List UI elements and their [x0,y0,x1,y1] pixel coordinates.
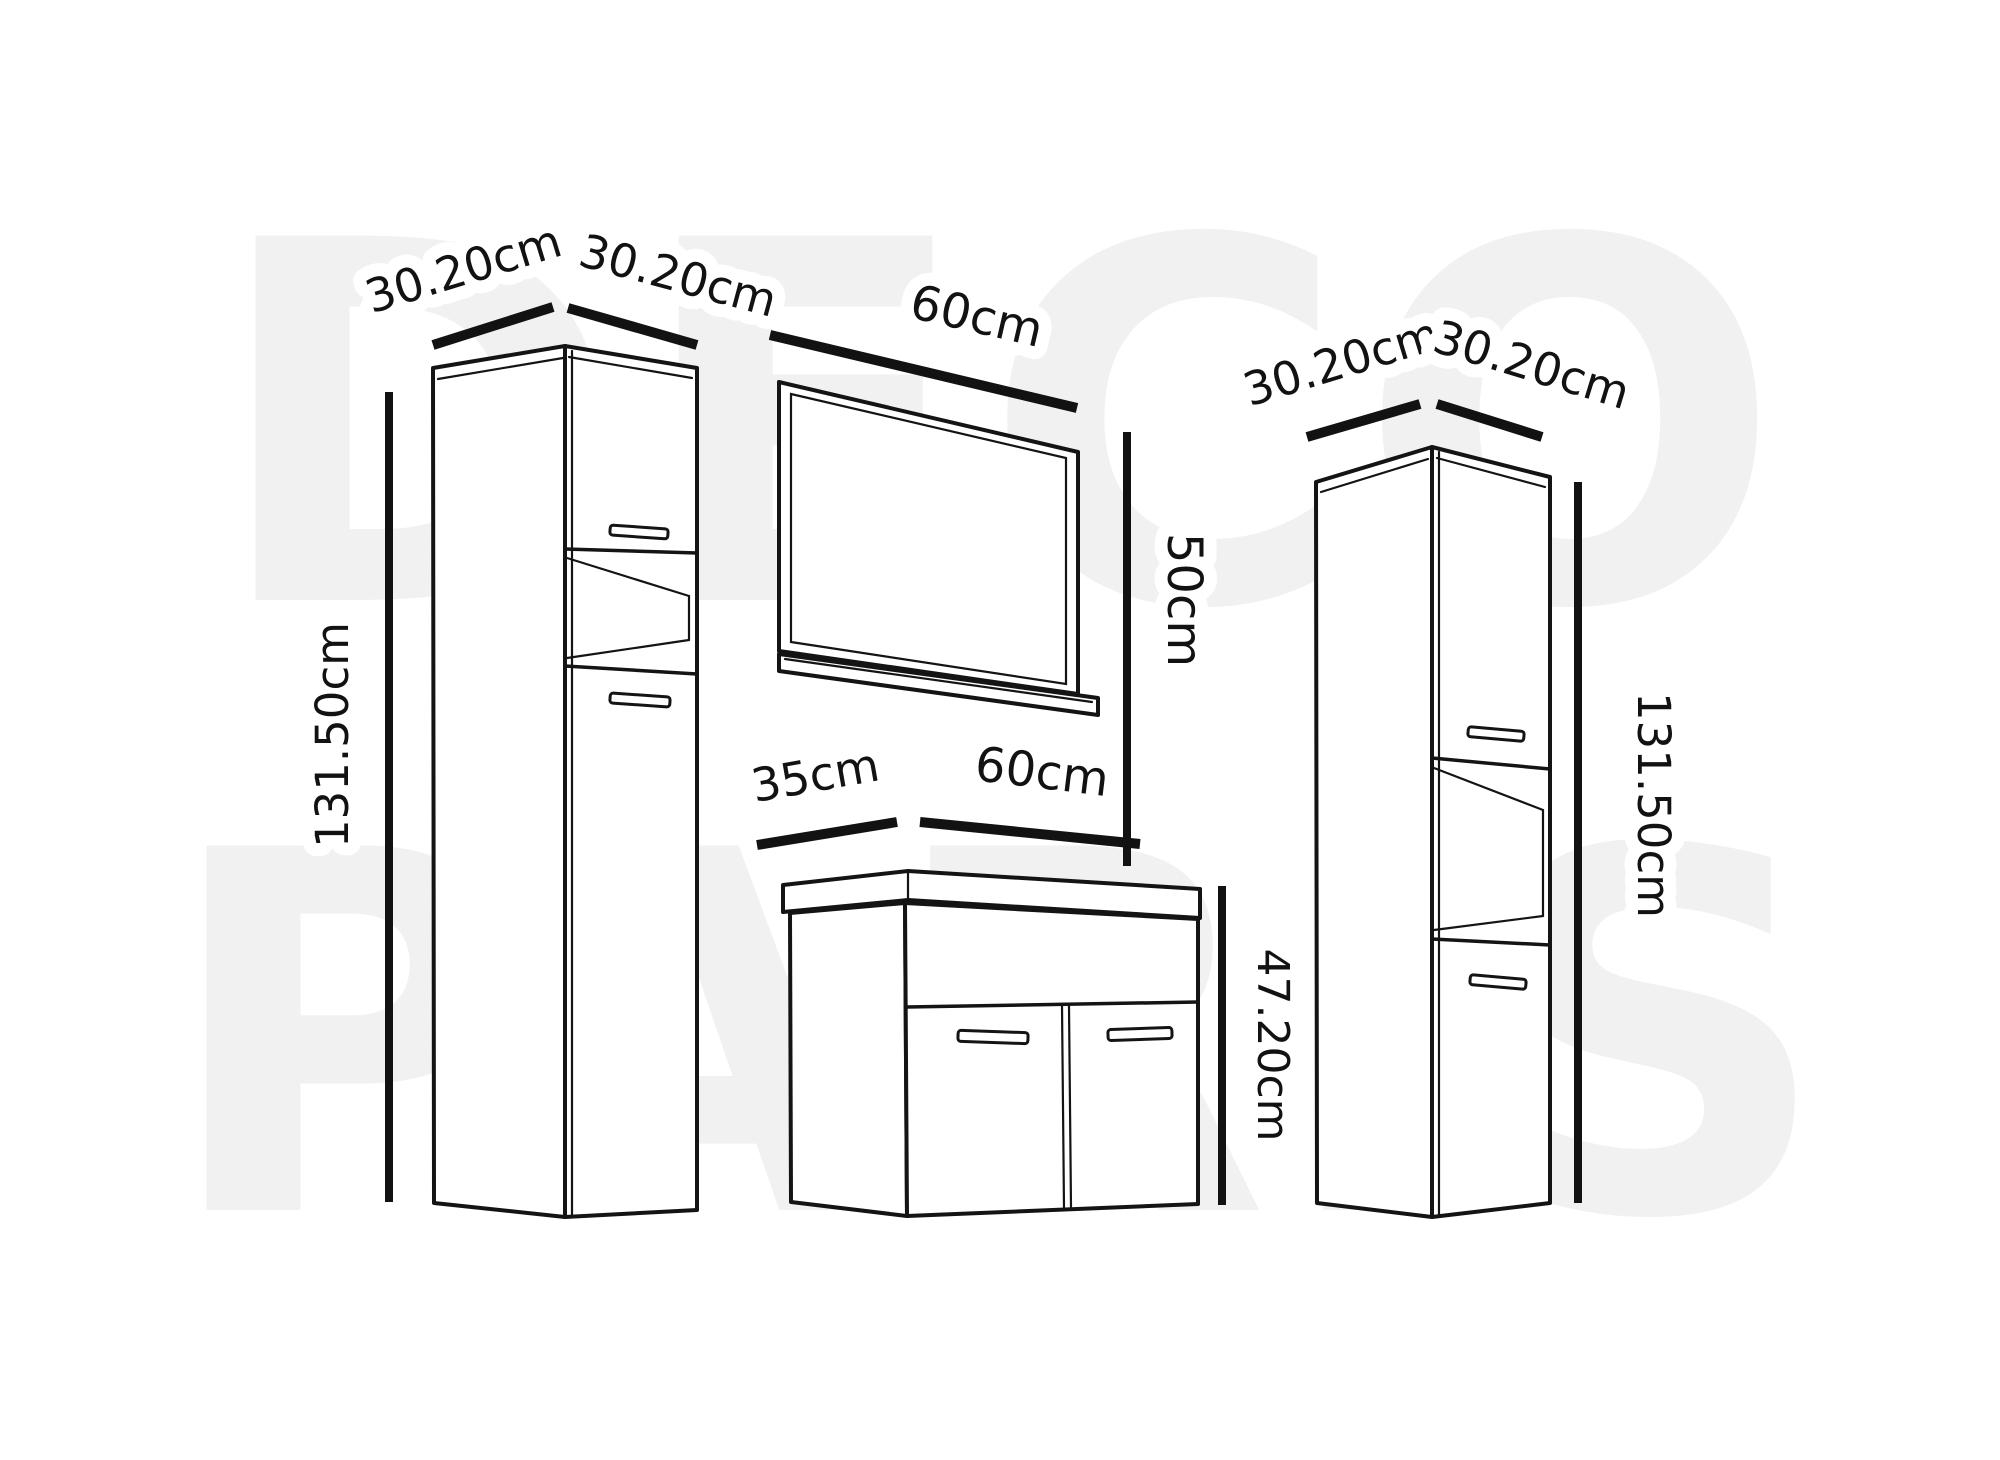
vanity-left-door-handle [958,1030,1028,1043]
vanity-height-label: 47.20cm [1247,948,1298,1141]
left-cabinet-side-panel [433,346,565,1217]
mirror-height-label: 50cm [1156,533,1212,667]
left-cabinet-top-door-handle [610,525,669,539]
right-cabinet-height-label: 131.50cm [1627,692,1680,918]
right-cabinet-front-face [1432,447,1550,1217]
left-cabinet-bottom-door-handle [610,693,671,707]
left-cabinet-front-face [565,346,697,1217]
right-cabinet-side-panel [1316,447,1432,1217]
vanity-right-door-handle [1108,1027,1172,1040]
vanity-side-panel [790,903,907,1216]
vanity-front-face [905,903,1198,1216]
furniture-dimension-diagram: DECO PARIS 30.20cm 30.20cm 131.50cm [0,0,2000,1460]
left-cabinet-height-label: 131.50cm [306,622,359,848]
